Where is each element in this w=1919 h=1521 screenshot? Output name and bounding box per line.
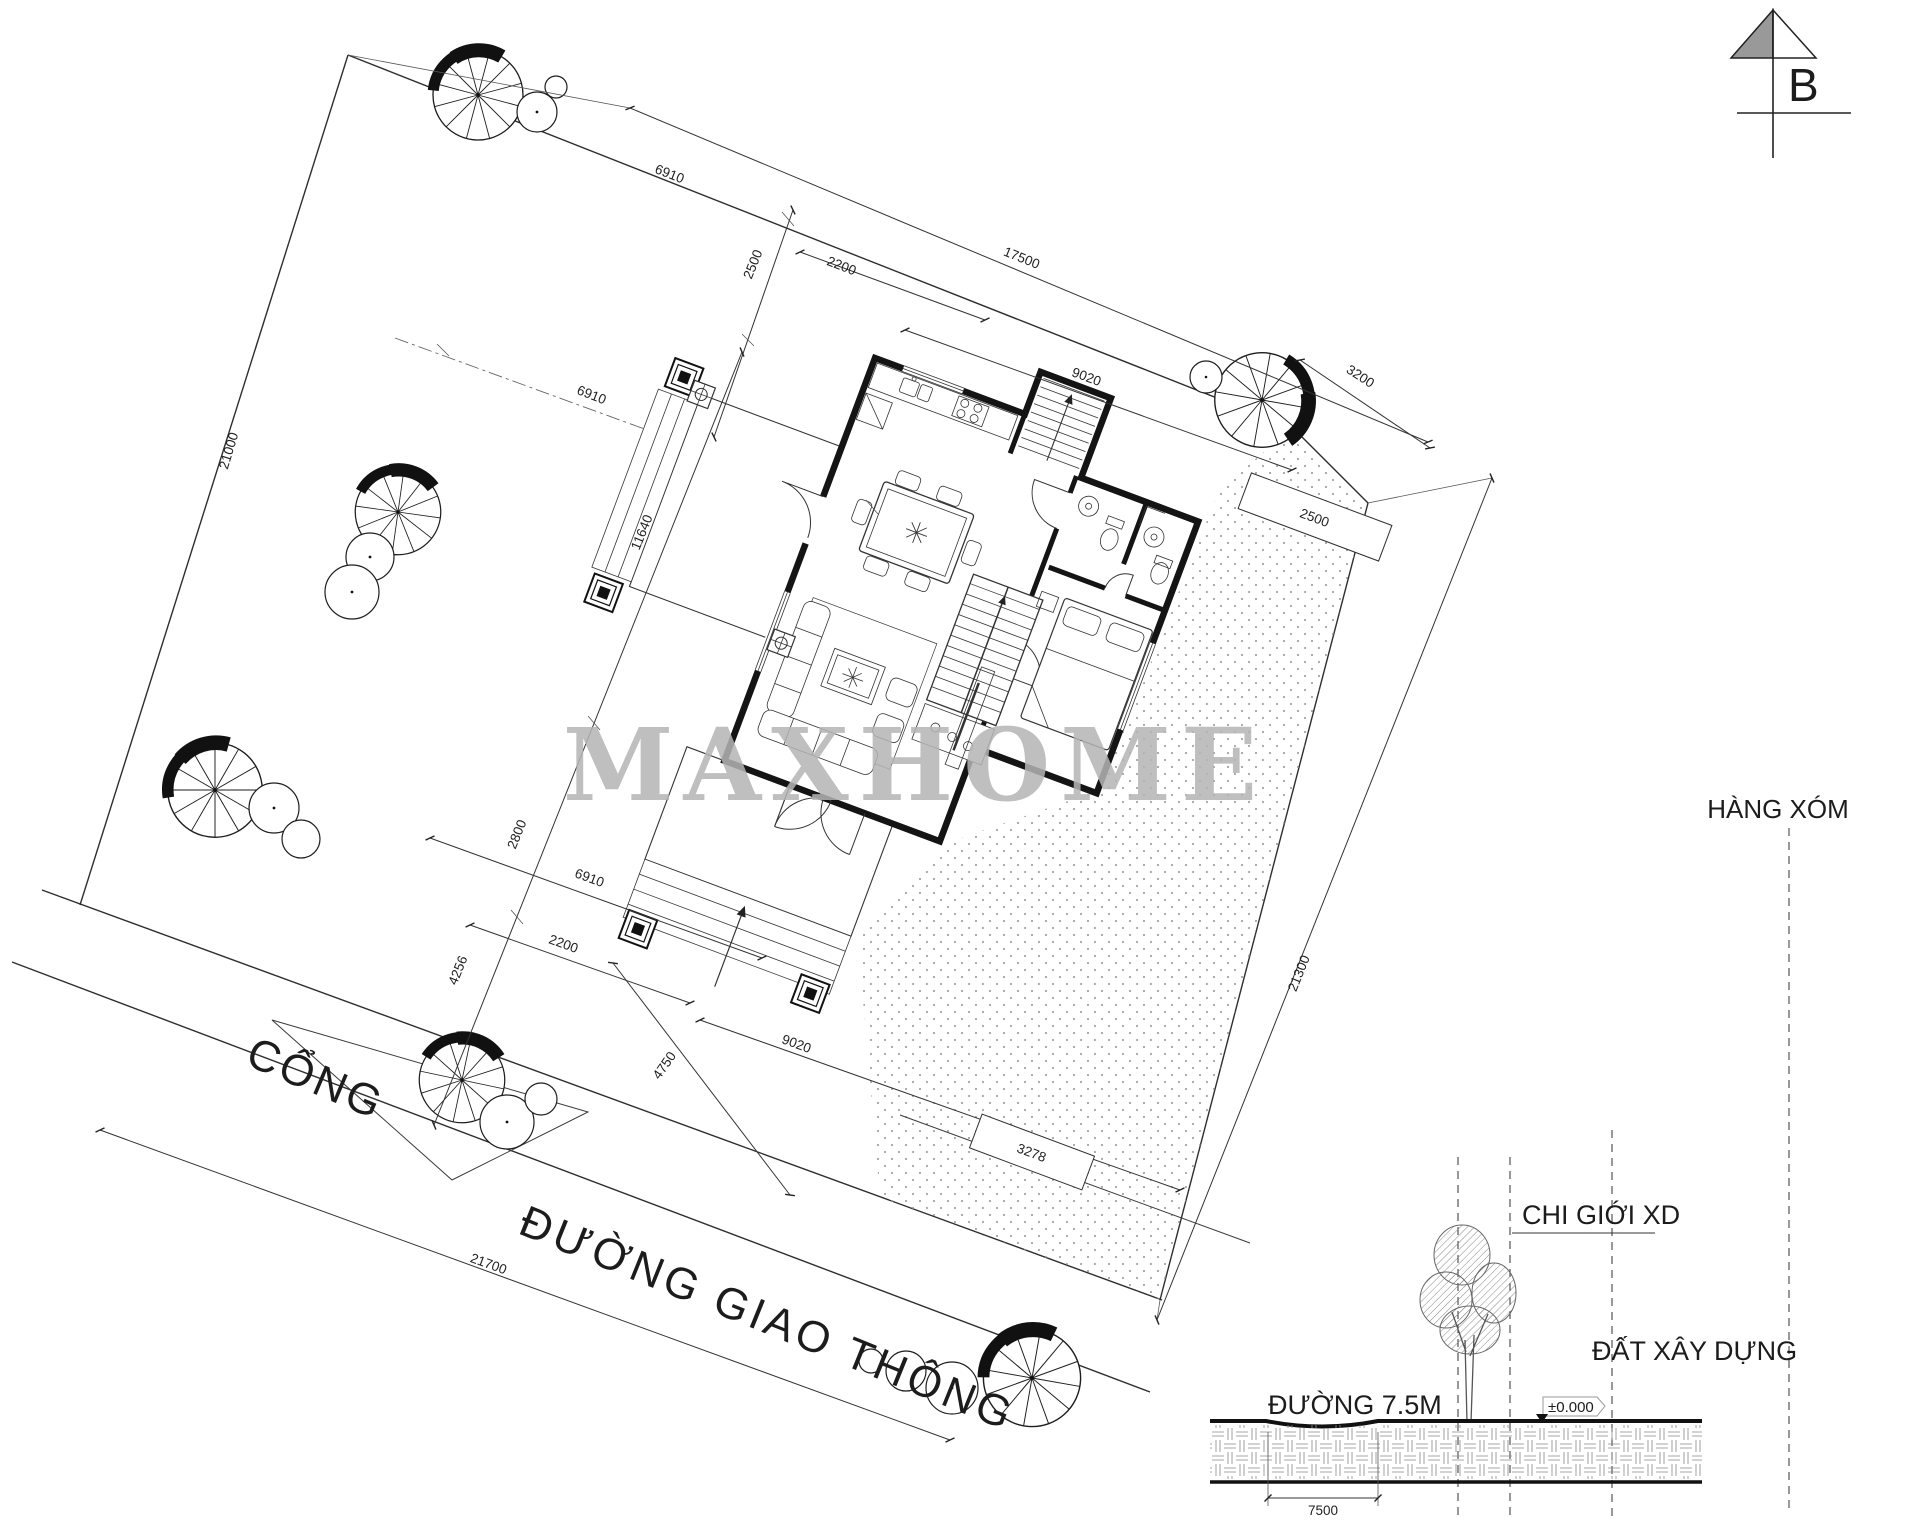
site-plan-drawing: 17500 6910 2500 2200 9020 3200 2500 2100… [0, 0, 1919, 1521]
gate-label: CỔNG [240, 1026, 392, 1129]
section-road-label: ĐƯỜNG 7.5M [1268, 1389, 1442, 1420]
dim-lower-seg: 2200 [547, 932, 580, 956]
north-label: B [1788, 59, 1819, 111]
tree-cluster-northeast [1190, 345, 1317, 454]
dim-front-seg: 4256 [445, 954, 470, 987]
site-plan-sheet: 17500 6910 2500 2200 9020 3200 2500 2100… [0, 0, 1919, 1521]
level-label: ±0.000 [1548, 1399, 1594, 1416]
road-label: ĐƯỜNG GIAO THÔNG [513, 1196, 1023, 1441]
dim-setback-top: 2500 [740, 248, 765, 281]
dim-road-frontage-total: 21700 [468, 1250, 508, 1277]
dim-side-seg: 2800 [504, 818, 529, 851]
dim-plot-top-total: 17500 [1001, 244, 1041, 272]
tree-cluster-left [325, 464, 446, 619]
watermark: MAXHOME [563, 706, 1267, 824]
dim-plot-right-total: 21300 [1285, 953, 1313, 993]
dim-lower-left: 6910 [573, 866, 606, 890]
section-land-label: ĐẤT XÂY DỰNG [1592, 1335, 1797, 1366]
section-boundary-label: CHI GIỚI XD [1522, 1199, 1680, 1230]
tree-cluster-lower-left [150, 725, 320, 858]
dim-plot-left-total: 21000 [216, 431, 241, 471]
neighbor-label: HÀNG XÓM [1707, 794, 1849, 824]
dim-front-setback: 4750 [650, 1049, 680, 1082]
dim-house-bottom-width: 9020 [780, 1032, 813, 1056]
north-arrow: B [1731, 10, 1851, 158]
dim-top-seg: 2200 [825, 253, 858, 278]
dim-lot-mid: 6910 [575, 382, 608, 407]
dim-section-road-width: 7500 [1308, 1503, 1338, 1518]
section-ground [1210, 1421, 1702, 1482]
gate-pillar [584, 574, 623, 613]
dim-corner-cut: 3200 [1344, 362, 1377, 391]
road-section-detail: CHI GIỚI XD ĐẤT XÂY DỰNG ĐƯỜNG 7.5M ±0.0… [1210, 1130, 1797, 1521]
tree-cluster-gate [411, 1029, 557, 1149]
